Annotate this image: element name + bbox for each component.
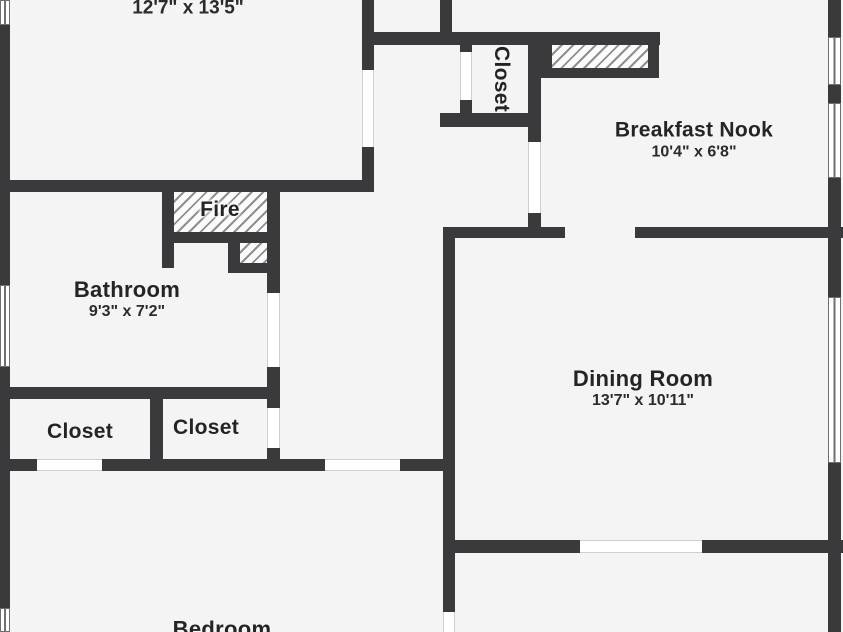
wall — [440, 0, 452, 45]
wall — [828, 85, 841, 103]
wall — [828, 0, 841, 37]
wall — [102, 459, 325, 471]
wall — [0, 180, 374, 192]
door-opening — [37, 459, 102, 471]
room-dims-text: 12'7" x 13'5" — [132, 0, 244, 21]
room-label-closet-middle: Closet — [173, 416, 239, 440]
wall — [460, 42, 472, 52]
wall — [443, 227, 565, 238]
room-dims-text: 13'7" x 10'11" — [573, 391, 713, 412]
room-label-fireplace: Fire — [200, 198, 240, 222]
room-label-closet-top: Closet — [489, 46, 513, 112]
room-dims-text: 10'4" x 6'8" — [615, 143, 773, 164]
room-label-top-left-room: 12'7" x 13'5" — [132, 0, 244, 21]
wall — [440, 113, 541, 127]
room-dims-text: 9'3" x 7'2" — [74, 302, 180, 323]
wall — [150, 398, 163, 471]
wall — [0, 387, 280, 399]
floor-plan: 12'7" x 13'5" Closet Breakfast Nook 10'4… — [0, 0, 843, 632]
wall — [443, 227, 455, 612]
door-opening — [443, 612, 455, 632]
room-label-bedroom: Bedroom — [173, 616, 272, 632]
door-opening — [580, 540, 702, 553]
window — [828, 103, 841, 178]
wall — [702, 540, 843, 553]
fireplace-wall — [162, 192, 174, 268]
door-opening — [460, 52, 472, 100]
window — [0, 608, 10, 632]
fireplace-wall — [228, 263, 278, 273]
fireplace-hatch — [240, 243, 267, 263]
room-label-closet-left: Closet — [47, 420, 113, 444]
room-name-text: Dining Room — [573, 366, 713, 391]
wall — [0, 25, 10, 285]
room-name-text: Bedroom — [173, 616, 272, 632]
room-name-text: Bathroom — [74, 277, 180, 302]
door-opening — [362, 70, 374, 147]
door-opening — [325, 459, 400, 471]
window — [828, 297, 841, 463]
room-name-text: Closet — [173, 416, 239, 440]
door-opening — [528, 142, 541, 213]
room-name-text: Breakfast Nook — [615, 119, 773, 143]
room-name-text: Closet — [47, 420, 113, 444]
wall — [0, 367, 10, 608]
wall — [443, 540, 580, 553]
fireplace-wall — [162, 232, 278, 243]
wall — [0, 459, 37, 471]
wall — [267, 367, 280, 408]
wall — [635, 227, 843, 238]
room-label-dining-room: Dining Room 13'7" x 10'11" — [573, 366, 713, 412]
room-label-bathroom: Bathroom 9'3" x 7'2" — [74, 277, 180, 323]
wall — [362, 0, 374, 70]
wall — [267, 448, 280, 471]
window — [0, 0, 10, 25]
window — [828, 37, 841, 85]
door-opening — [267, 293, 280, 367]
room-name-text: Fire — [200, 198, 240, 222]
wall — [528, 213, 541, 238]
room-label-breakfast-nook: Breakfast Nook 10'4" x 6'8" — [615, 119, 773, 164]
room-name-text: Closet — [489, 46, 513, 112]
door-opening — [267, 408, 280, 448]
counter-wall — [540, 68, 659, 78]
window — [0, 285, 10, 367]
wall — [362, 32, 660, 45]
counter-hatch — [552, 45, 648, 68]
wall — [362, 147, 374, 192]
